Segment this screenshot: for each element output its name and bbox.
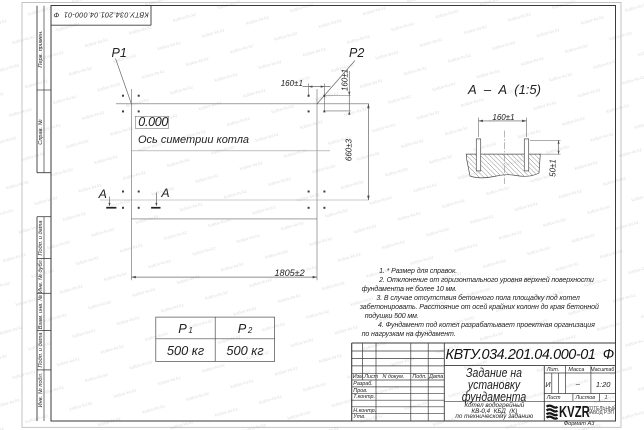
svg-text:kotlov-kv.kz: kotlov-kv.kz <box>236 232 261 244</box>
svg-text:kotlov-kv.kz: kotlov-kv.kz <box>384 166 409 178</box>
svg-text:kotlov-kv.kz: kotlov-kv.kz <box>166 157 191 169</box>
svg-text:kotlov-kv.kz: kotlov-kv.kz <box>0 62 21 74</box>
svg-text:kotlov-kv.kz: kotlov-kv.kz <box>132 286 157 298</box>
svg-text:kotlov-kv.kz: kotlov-kv.kz <box>265 248 290 260</box>
svg-text:kotlov-kv.kz: kotlov-kv.kz <box>318 352 343 364</box>
svg-text:kotlov-kv.kz: kotlov-kv.kz <box>186 390 211 402</box>
svg-text:kotlov-kv.kz: kotlov-kv.kz <box>410 254 435 266</box>
svg-text:kotlov-kv.kz: kotlov-kv.kz <box>343 106 368 118</box>
svg-text:kotlov-kv.kz: kotlov-kv.kz <box>426 226 451 238</box>
svg-text:kotlov-kv.kz: kotlov-kv.kz <box>59 283 84 295</box>
svg-text:kotlov-kv.kz: kotlov-kv.kz <box>432 81 457 93</box>
svg-text:kotlov-kv.kz: kotlov-kv.kz <box>325 207 350 219</box>
svg-text:kotlov-kv.kz: kotlov-kv.kz <box>72 0 97 4</box>
svg-text:kotlov-kv.kz: kotlov-kv.kz <box>580 14 605 26</box>
svg-text:kotlov-kv.kz: kotlov-kv.kz <box>492 40 517 52</box>
svg-text:kotlov-kv.kz: kotlov-kv.kz <box>255 131 280 143</box>
svg-text:kotlov-kv.kz: kotlov-kv.kz <box>359 78 384 90</box>
svg-text:kotlov-kv.kz: kotlov-kv.kz <box>110 125 135 137</box>
svg-text:kotlov-kv.kz: kotlov-kv.kz <box>625 336 644 348</box>
svg-text:kotlov-kv.kz: kotlov-kv.kz <box>0 135 18 147</box>
svg-text:kotlov-kv.kz: kotlov-kv.kz <box>62 211 87 223</box>
svg-text:kotlov-kv.kz: kotlov-kv.kz <box>220 261 245 273</box>
svg-text:kotlov-kv.kz: kotlov-kv.kz <box>85 372 110 384</box>
svg-text:kotlov-kv.kz: kotlov-kv.kz <box>388 93 413 105</box>
svg-text:kotlov-kv.kz: kotlov-kv.kz <box>391 356 416 368</box>
svg-text:kotlov-kv.kz: kotlov-kv.kz <box>163 229 188 241</box>
svg-text:kotlov-kv.kz: kotlov-kv.kz <box>258 59 283 71</box>
svg-text:kotlov-kv.kz: kotlov-kv.kz <box>81 109 106 121</box>
svg-text:kotlov-kv.kz: kotlov-kv.kz <box>53 94 78 106</box>
svg-text:kotlov-kv.kz: kotlov-kv.kz <box>337 251 362 263</box>
svg-text:kotlov-kv.kz: kotlov-kv.kz <box>290 337 315 349</box>
svg-text:kotlov-kv.kz: kotlov-kv.kz <box>148 258 173 270</box>
svg-text:kotlov-kv.kz: kotlov-kv.kz <box>372 122 397 134</box>
svg-text:kotlov-kv.kz: kotlov-kv.kz <box>0 353 8 365</box>
svg-text:kotlov-kv.kz: kotlov-kv.kz <box>587 204 612 216</box>
svg-text:kotlov-kv.kz: kotlov-kv.kz <box>429 153 454 165</box>
svg-text:kotlov-kv.kz: kotlov-kv.kz <box>637 46 644 58</box>
svg-text:kotlov-kv.kz: kotlov-kv.kz <box>599 248 624 260</box>
svg-text:kotlov-kv.kz: kotlov-kv.kz <box>145 331 170 343</box>
svg-text:kotlov-kv.kz: kotlov-kv.kz <box>214 406 239 418</box>
svg-text:kotlov-kv.kz: kotlov-kv.kz <box>454 242 479 254</box>
svg-text:kotlov-kv.kz: kotlov-kv.kz <box>91 226 116 238</box>
svg-text:kotlov-kv.kz: kotlov-kv.kz <box>233 305 258 317</box>
svg-text:kotlov-kv.kz: kotlov-kv.kz <box>299 119 324 131</box>
svg-text:kotlov-kv.kz: kotlov-kv.kz <box>100 343 125 355</box>
svg-text:kotlov-kv.kz: kotlov-kv.kz <box>0 207 14 219</box>
svg-text:kotlov-kv.kz: kotlov-kv.kz <box>0 280 11 292</box>
svg-text:kotlov-kv.kz: kotlov-kv.kz <box>571 232 596 244</box>
svg-text:kotlov-kv.kz: kotlov-kv.kz <box>173 11 198 23</box>
svg-text:kotlov-kv.kz: kotlov-kv.kz <box>122 169 147 181</box>
svg-text:kotlov-kv.kz: kotlov-kv.kz <box>160 302 185 314</box>
svg-text:kotlov-kv.kz: kotlov-kv.kz <box>242 87 267 99</box>
svg-text:kotlov-kv.kz: kotlov-kv.kz <box>486 185 511 197</box>
svg-text:kotlov-kv.kz: kotlov-kv.kz <box>441 198 466 210</box>
svg-text:kotlov-kv.kz: kotlov-kv.kz <box>179 201 204 213</box>
svg-text:kotlov-kv.kz: kotlov-kv.kz <box>463 24 488 36</box>
svg-text:kotlov-kv.kz: kotlov-kv.kz <box>596 321 621 333</box>
svg-text:kotlov-kv.kz: kotlov-kv.kz <box>400 138 425 150</box>
svg-text:kotlov-kv.kz: kotlov-kv.kz <box>198 100 223 112</box>
svg-text:kotlov-kv.kz: kotlov-kv.kz <box>574 159 599 171</box>
svg-text:kotlov-kv.kz: kotlov-kv.kz <box>287 409 312 421</box>
svg-text:kotlov-kv.kz: kotlov-kv.kz <box>403 65 428 77</box>
svg-text:kotlov-kv.kz: kotlov-kv.kz <box>618 147 643 159</box>
svg-text:kotlov-kv.kz: kotlov-kv.kz <box>141 403 166 415</box>
svg-text:kotlov-kv.kz: kotlov-kv.kz <box>0 91 5 103</box>
svg-text:kotlov-kv.kz: kotlov-kv.kz <box>268 176 293 188</box>
svg-text:kotlov-kv.kz: kotlov-kv.kz <box>280 220 305 232</box>
svg-text:kotlov-kv.kz: kotlov-kv.kz <box>0 18 8 30</box>
svg-text:kotlov-kv.kz: kotlov-kv.kz <box>113 387 138 399</box>
svg-text:kotlov-kv.kz: kotlov-kv.kz <box>302 46 327 58</box>
svg-text:kotlov-kv.kz: kotlov-kv.kz <box>65 138 90 150</box>
svg-text:kotlov-kv.kz: kotlov-kv.kz <box>416 109 441 121</box>
svg-text:kotlov-kv.kz: kotlov-kv.kz <box>306 308 331 320</box>
svg-text:kotlov-kv.kz: kotlov-kv.kz <box>195 172 220 184</box>
svg-text:kotlov-kv.kz: kotlov-kv.kz <box>271 103 296 115</box>
svg-text:kotlov-kv.kz: kotlov-kv.kz <box>303 381 328 393</box>
svg-text:kotlov-kv.kz: kotlov-kv.kz <box>252 204 277 216</box>
svg-text:kotlov-kv.kz: kotlov-kv.kz <box>558 188 583 200</box>
svg-text:kotlov-kv.kz: kotlov-kv.kz <box>419 36 444 48</box>
svg-text:kotlov-kv.kz: kotlov-kv.kz <box>21 151 46 163</box>
svg-text:kotlov-kv.kz: kotlov-kv.kz <box>116 315 141 327</box>
svg-text:kotlov-kv.kz: kotlov-kv.kz <box>290 2 315 14</box>
svg-text:kotlov-kv.kz: kotlov-kv.kz <box>12 369 37 381</box>
svg-text:kotlov-kv.kz: kotlov-kv.kz <box>334 0 359 1</box>
svg-text:kotlov-kv.kz: kotlov-kv.kz <box>201 362 226 374</box>
svg-text:kotlov-kv.kz: kotlov-kv.kz <box>602 175 627 187</box>
svg-text:kotlov-kv.kz: kotlov-kv.kz <box>56 356 81 368</box>
svg-text:kotlov-kv.kz: kotlov-kv.kz <box>514 201 539 213</box>
svg-text:kotlov-kv.kz: kotlov-kv.kz <box>230 378 255 390</box>
svg-text:kotlov-kv.kz: kotlov-kv.kz <box>533 100 558 112</box>
svg-text:kotlov-kv.kz: kotlov-kv.kz <box>129 359 154 371</box>
svg-text:kotlov-kv.kz: kotlov-kv.kz <box>621 74 644 86</box>
svg-text:kotlov-kv.kz: kotlov-kv.kz <box>353 223 378 235</box>
svg-text:kotlov-kv.kz: kotlov-kv.kz <box>157 375 182 387</box>
svg-text:kotlov-kv.kz: kotlov-kv.kz <box>5 179 30 191</box>
svg-text:kotlov-kv.kz: kotlov-kv.kz <box>564 43 589 55</box>
svg-text:kotlov-kv.kz: kotlov-kv.kz <box>214 71 239 83</box>
svg-text:kotlov-kv.kz: kotlov-kv.kz <box>435 8 460 20</box>
svg-text:kotlov-kv.kz: kotlov-kv.kz <box>552 0 577 10</box>
svg-text:kotlov-kv.kz: kotlov-kv.kz <box>381 239 406 251</box>
svg-text:kotlov-kv.kz: kotlov-kv.kz <box>527 245 552 257</box>
svg-text:kotlov-kv.kz: kotlov-kv.kz <box>94 154 119 166</box>
svg-text:kotlov-kv.kz: kotlov-kv.kz <box>334 324 359 336</box>
svg-text:kotlov-kv.kz: kotlov-kv.kz <box>606 103 631 115</box>
svg-text:kotlov-kv.kz: kotlov-kv.kz <box>34 195 59 207</box>
svg-text:kotlov-kv.kz: kotlov-kv.kz <box>128 24 153 36</box>
svg-text:kotlov-kv.kz: kotlov-kv.kz <box>404 400 429 412</box>
svg-text:kotlov-kv.kz: kotlov-kv.kz <box>517 128 542 140</box>
svg-text:kotlov-kv.kz: kotlov-kv.kz <box>628 264 644 276</box>
svg-text:kotlov-kv.kz: kotlov-kv.kz <box>223 188 248 200</box>
svg-text:kotlov-kv.kz: kotlov-kv.kz <box>8 106 33 118</box>
svg-text:kotlov-kv.kz: kotlov-kv.kz <box>88 299 113 311</box>
svg-text:kotlov-kv.kz: kotlov-kv.kz <box>413 182 438 194</box>
svg-text:kotlov-kv.kz: kotlov-kv.kz <box>641 308 644 320</box>
svg-text:kotlov-kv.kz: kotlov-kv.kz <box>362 5 387 17</box>
svg-text:kotlov-kv.kz: kotlov-kv.kz <box>346 33 371 45</box>
svg-text:kotlov-kv.kz: kotlov-kv.kz <box>498 229 523 241</box>
svg-text:kotlov-kv.kz: kotlov-kv.kz <box>391 21 416 33</box>
svg-text:kotlov-kv.kz: kotlov-kv.kz <box>277 292 302 304</box>
svg-text:kotlov-kv.kz: kotlov-kv.kz <box>0 397 21 409</box>
svg-text:kotlov-kv.kz: kotlov-kv.kz <box>577 87 602 99</box>
svg-text:kotlov-kv.kz: kotlov-kv.kz <box>103 271 128 283</box>
svg-text:kotlov-kv.kz: kotlov-kv.kz <box>12 34 37 46</box>
svg-text:kotlov-kv.kz: kotlov-kv.kz <box>43 312 68 324</box>
svg-text:kotlov-kv.kz: kotlov-kv.kz <box>546 144 571 156</box>
svg-text:kotlov-kv.kz: kotlov-kv.kz <box>470 213 495 225</box>
svg-text:kotlov-kv.kz: kotlov-kv.kz <box>226 116 251 128</box>
svg-text:kotlov-kv.kz: kotlov-kv.kz <box>448 52 473 64</box>
svg-text:kotlov-kv.kz: kotlov-kv.kz <box>170 84 195 96</box>
svg-text:kotlov-kv.kz: kotlov-kv.kz <box>536 27 561 39</box>
svg-text:kotlov-kv.kz: kotlov-kv.kz <box>245 14 270 26</box>
svg-text:kotlov-kv.kz: kotlov-kv.kz <box>176 274 201 286</box>
svg-text:kotlov-kv.kz: kotlov-kv.kz <box>375 49 400 61</box>
svg-text:kotlov-kv.kz: kotlov-kv.kz <box>309 236 334 248</box>
svg-text:kotlov-kv.kz: kotlov-kv.kz <box>15 296 40 308</box>
svg-text:kotlov-kv.kz: kotlov-kv.kz <box>274 30 299 42</box>
svg-text:kotlov-kv.kz: kotlov-kv.kz <box>593 58 618 70</box>
svg-text:kotlov-kv.kz: kotlov-kv.kz <box>0 425 5 430</box>
svg-text:kotlov-kv.kz: kotlov-kv.kz <box>520 55 545 67</box>
svg-text:kotlov-kv.kz: kotlov-kv.kz <box>205 289 230 301</box>
svg-text:kotlov-kv.kz: kotlov-kv.kz <box>624 1 644 13</box>
svg-text:kotlov-kv.kz: kotlov-kv.kz <box>230 43 255 55</box>
svg-text:kotlov-kv.kz: kotlov-kv.kz <box>185 56 210 68</box>
svg-text:kotlov-kv.kz: kotlov-kv.kz <box>312 163 337 175</box>
svg-text:kotlov-kv.kz: kotlov-kv.kz <box>634 118 644 130</box>
svg-text:kotlov-kv.kz: kotlov-kv.kz <box>590 131 615 143</box>
svg-text:kotlov-kv.kz: kotlov-kv.kz <box>444 125 469 137</box>
svg-text:kotlov-kv.kz: kotlov-kv.kz <box>141 68 166 80</box>
svg-text:kotlov-kv.kz: kotlov-kv.kz <box>84 37 109 49</box>
svg-text:kotlov-kv.kz: kotlov-kv.kz <box>47 239 72 251</box>
svg-text:kotlov-kv.kz: kotlov-kv.kz <box>69 400 94 412</box>
svg-text:kotlov-kv.kz: kotlov-kv.kz <box>460 96 485 108</box>
svg-text:kotlov-kv.kz: kotlov-kv.kz <box>615 219 640 231</box>
svg-text:kotlov-kv.kz: kotlov-kv.kz <box>56 21 81 33</box>
svg-text:kotlov-kv.kz: kotlov-kv.kz <box>201 27 226 39</box>
svg-text:kotlov-kv.kz: kotlov-kv.kz <box>637 381 644 393</box>
svg-text:kotlov-kv.kz: kotlov-kv.kz <box>261 321 286 333</box>
svg-text:kotlov-kv.kz: kotlov-kv.kz <box>97 416 122 428</box>
svg-text:kotlov-kv.kz: kotlov-kv.kz <box>239 160 264 172</box>
svg-text:kotlov-kv.kz: kotlov-kv.kz <box>0 0 24 1</box>
svg-text:kotlov-kv.kz: kotlov-kv.kz <box>631 191 644 203</box>
svg-text:kotlov-kv.kz: kotlov-kv.kz <box>318 18 343 30</box>
svg-text:kotlov-kv.kz: kotlov-kv.kz <box>258 394 283 406</box>
svg-text:kotlov-kv.kz: kotlov-kv.kz <box>249 277 274 289</box>
svg-text:kotlov-kv.kz: kotlov-kv.kz <box>144 0 169 7</box>
svg-text:kotlov-kv.kz: kotlov-kv.kz <box>68 65 93 77</box>
svg-text:kotlov-kv.kz: kotlov-kv.kz <box>406 0 431 4</box>
svg-text:kotlov-kv.kz: kotlov-kv.kz <box>274 365 299 377</box>
svg-text:kotlov-kv.kz: kotlov-kv.kz <box>363 340 388 352</box>
svg-text:kotlov-kv.kz: kotlov-kv.kz <box>72 327 97 339</box>
svg-text:kotlov-kv.kz: kotlov-kv.kz <box>508 11 533 23</box>
svg-text:kotlov-kv.kz: kotlov-kv.kz <box>75 255 100 267</box>
svg-text:kotlov-kv.kz: kotlov-kv.kz <box>340 179 365 191</box>
svg-text:kotlov-kv.kz: kotlov-kv.kz <box>283 147 308 159</box>
svg-text:kotlov-kv.kz: kotlov-kv.kz <box>549 71 574 83</box>
svg-text:kotlov-kv.kz: kotlov-kv.kz <box>476 68 501 80</box>
svg-text:kotlov-kv.kz: kotlov-kv.kz <box>157 40 182 52</box>
svg-text:kotlov-kv.kz: kotlov-kv.kz <box>243 422 268 430</box>
svg-text:kotlov-kv.kz: kotlov-kv.kz <box>2 252 27 264</box>
svg-text:kotlov-kv.kz: kotlov-kv.kz <box>543 216 568 228</box>
svg-text:kotlov-kv.kz: kotlov-kv.kz <box>97 81 122 93</box>
svg-text:kotlov-kv.kz: kotlov-kv.kz <box>622 409 644 421</box>
svg-text:kotlov-kv.kz: kotlov-kv.kz <box>50 166 75 178</box>
svg-text:kotlov-kv.kz: kotlov-kv.kz <box>192 245 217 257</box>
svg-text:kotlov-kv.kz: kotlov-kv.kz <box>321 280 346 292</box>
svg-text:kotlov-kv.kz: kotlov-kv.kz <box>27 5 52 17</box>
svg-text:kotlov-kv.kz: kotlov-kv.kz <box>0 324 24 336</box>
svg-text:kotlov-kv.kz: kotlov-kv.kz <box>208 217 233 229</box>
svg-text:kotlov-kv.kz: kotlov-kv.kz <box>561 115 586 127</box>
svg-text:kotlov-kv.kz: kotlov-kv.kz <box>369 194 394 206</box>
svg-text:kotlov-kv.kz: kotlov-kv.kz <box>397 210 422 222</box>
svg-text:kotlov-kv.kz: kotlov-kv.kz <box>0 163 2 175</box>
svg-text:kotlov-kv.kz: kotlov-kv.kz <box>125 97 150 109</box>
svg-text:kotlov-kv.kz: kotlov-kv.kz <box>135 214 160 226</box>
